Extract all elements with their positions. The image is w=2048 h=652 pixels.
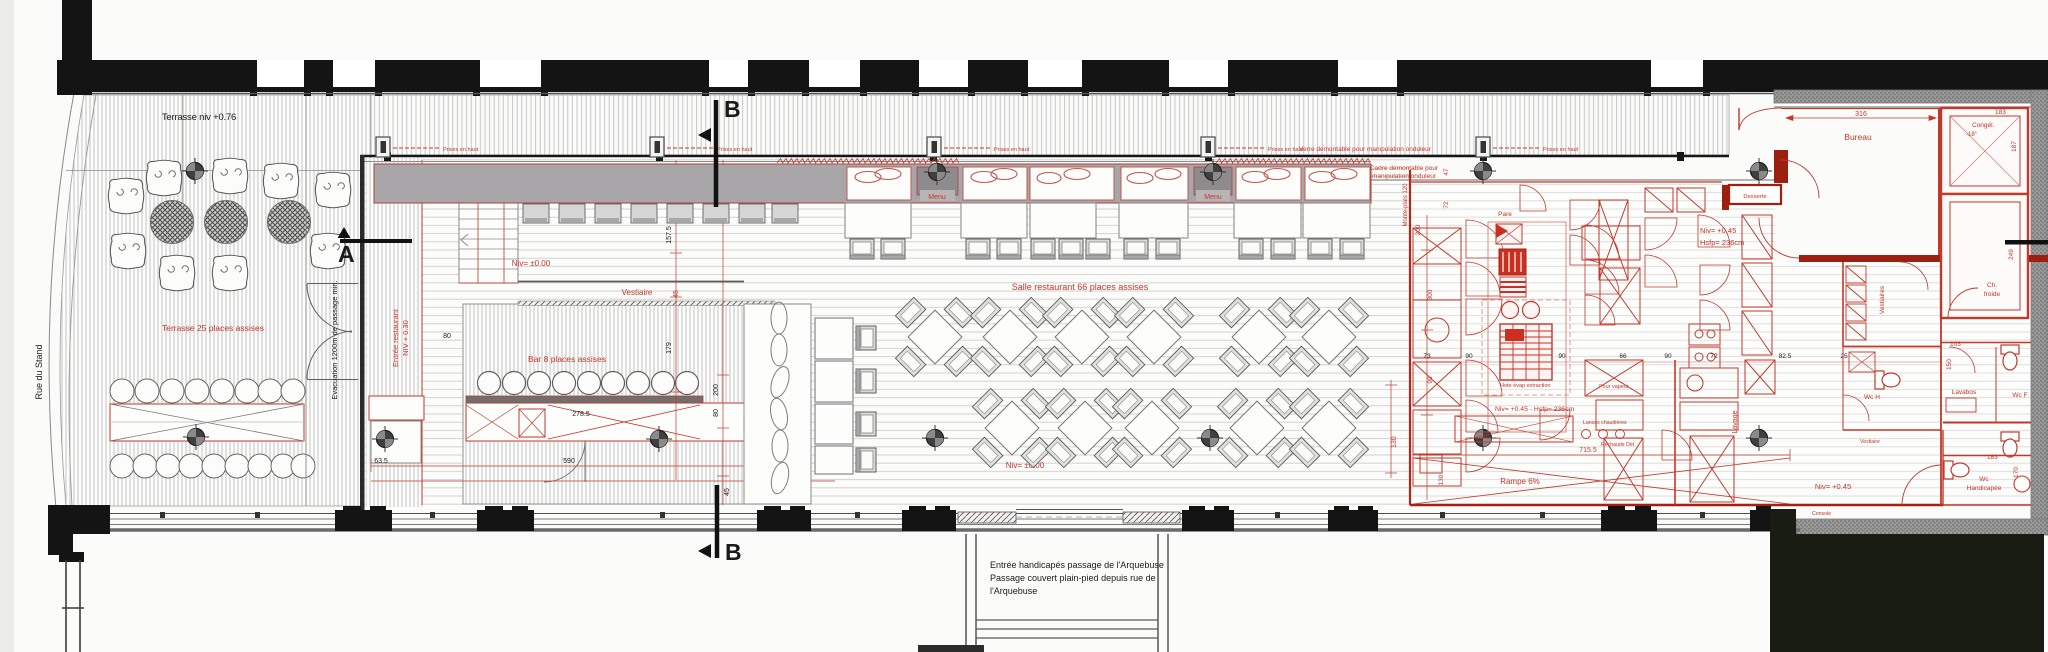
svg-text:73: 73	[1423, 353, 1431, 360]
svg-text:Terrasse 25 places assises: Terrasse 25 places assises	[162, 323, 264, 333]
svg-text:130: 130	[1391, 436, 1398, 448]
svg-text:Ch.: Ch.	[1987, 282, 1997, 289]
svg-text:715.5: 715.5	[1579, 447, 1597, 454]
svg-text:63.5: 63.5	[374, 458, 388, 465]
svg-text:300: 300	[1427, 289, 1434, 300]
svg-text:Entrée handicapés passage de l: Entrée handicapés passage de l'Arquebuse	[990, 560, 1164, 570]
svg-text:Hote évap extraction: Hote évap extraction	[1500, 383, 1550, 389]
svg-text:Terrasse niv +0.76: Terrasse niv +0.76	[162, 112, 236, 123]
svg-text:Pare: Pare	[1498, 211, 1512, 218]
svg-text:Wc H: Wc H	[1864, 394, 1880, 401]
svg-text:Console: Console	[1812, 511, 1831, 517]
svg-text:Prises en haut: Prises en haut	[717, 147, 753, 153]
svg-text:Niv= +0.45: Niv= +0.45	[1815, 482, 1851, 491]
svg-text:Handicapée: Handicapée	[1967, 485, 2002, 492]
svg-text:Rue du Stand: Rue du Stand	[34, 344, 44, 399]
svg-text:150: 150	[1946, 359, 1953, 370]
svg-text:82.5: 82.5	[1779, 353, 1792, 360]
svg-text:130: 130	[1438, 474, 1445, 485]
svg-text:590: 590	[563, 458, 575, 465]
svg-text:Menu: Menu	[1204, 194, 1222, 201]
svg-text:80: 80	[713, 409, 720, 417]
svg-text:Vestiaire: Vestiaire	[1860, 439, 1880, 445]
svg-text:manipulation onduleur: manipulation onduleur	[1372, 173, 1437, 180]
svg-text:278.5: 278.5	[572, 411, 590, 418]
svg-text:90: 90	[1465, 353, 1473, 360]
svg-text:Lavabos: Lavabos	[1952, 389, 1977, 396]
svg-text:Bureau: Bureau	[1844, 132, 1872, 142]
svg-text:80: 80	[443, 333, 451, 340]
svg-text:-18°: -18°	[1966, 132, 1978, 138]
svg-text:90: 90	[1558, 353, 1566, 360]
svg-text:200: 200	[713, 384, 720, 396]
svg-text:Four vapeur: Four vapeur	[1599, 384, 1629, 390]
svg-text:Salle restaurant 66 places ass: Salle restaurant 66 places assises	[1012, 282, 1149, 292]
svg-text:Hsfp= 236cm: Hsfp= 236cm	[1700, 238, 1744, 247]
svg-text:Wc: Wc	[1979, 476, 1989, 483]
svg-text:316: 316	[1855, 111, 1867, 118]
svg-text:Wc F: Wc F	[2012, 392, 2027, 399]
svg-text:47: 47	[1443, 168, 1450, 176]
svg-text:Prises en haut: Prises en haut	[1268, 147, 1304, 153]
svg-text:Cadre démontable pour: Cadre démontable pour	[1370, 165, 1439, 172]
svg-text:Prises en haut: Prises en haut	[443, 147, 479, 153]
svg-text:Prises en haut: Prises en haut	[994, 147, 1030, 153]
svg-text:Niv= +0.45: Niv= +0.45	[1700, 226, 1736, 235]
svg-text:Menu: Menu	[928, 194, 946, 201]
svg-text:Rampe 6%: Rampe 6%	[1500, 477, 1540, 486]
svg-text:Passage couvert plain-pied dep: Passage couvert plain-pied depuis rue de	[990, 573, 1156, 583]
svg-text:Evacuation 1200m de passage mi: Evacuation 1200m de passage min.	[330, 280, 339, 399]
svg-text:72: 72	[1443, 201, 1450, 209]
svg-text:66: 66	[1619, 353, 1627, 360]
svg-text:187: 187	[2011, 141, 2018, 152]
svg-text:Niv= +0.45 - Hsfp= 236cm: Niv= +0.45 - Hsfp= 236cm	[1495, 406, 1574, 413]
svg-text:Réchaude Dét: Réchaude Dét	[1601, 442, 1635, 448]
svg-text:B: B	[725, 539, 742, 565]
svg-text:Niv= ±0.00: Niv= ±0.00	[512, 259, 551, 268]
svg-text:Lavage: Lavage	[1732, 410, 1739, 433]
svg-text:183: 183	[1987, 454, 1998, 461]
svg-text:A: A	[338, 241, 355, 267]
svg-text:183: 183	[1995, 109, 2006, 116]
svg-text:Vestiaires: Vestiaires	[1879, 285, 1886, 314]
svg-text:25: 25	[1840, 353, 1848, 360]
svg-text:Verre démontable pour manipula: Verre démontable pour manipulation ondul…	[1299, 146, 1432, 153]
svg-text:45: 45	[724, 488, 731, 496]
svg-text:157.5: 157.5	[666, 226, 673, 244]
svg-text:179: 179	[666, 342, 673, 354]
svg-text:NIV + 0.30: NIV + 0.30	[401, 320, 410, 356]
svg-text:Prises en haut: Prises en haut	[1543, 147, 1579, 153]
svg-text:Lances chaudières: Lances chaudières	[1583, 420, 1627, 426]
svg-text:Entrée restaurant: Entrée restaurant	[391, 308, 400, 367]
svg-text:Desserte: Desserte	[1743, 194, 1766, 200]
svg-text:Vestiaire: Vestiaire	[622, 288, 653, 297]
svg-text:Congél.: Congél.	[1972, 122, 1995, 129]
svg-text:90: 90	[1664, 353, 1672, 360]
svg-text:Bar 8 places assises: Bar 8 places assises	[528, 354, 606, 364]
svg-text:l'Arquebuse: l'Arquebuse	[990, 586, 1037, 596]
svg-text:Monte-plats 120: Monte-plats 120	[1403, 183, 1409, 227]
svg-text:froide: froide	[1984, 291, 2001, 298]
svg-text:B: B	[724, 96, 741, 122]
svg-text:249: 249	[2008, 249, 2015, 260]
